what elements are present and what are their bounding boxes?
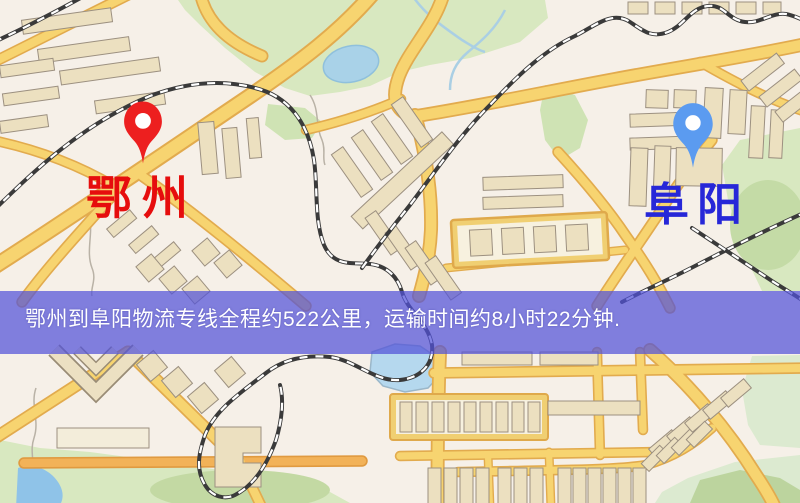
destination-label: 阜阳 bbox=[644, 182, 750, 227]
route-info-text: 鄂州到阜阳物流专线全程约522公里，运输时间约8小时22分钟. bbox=[0, 303, 620, 333]
base-map bbox=[0, 0, 800, 503]
destination-marker-icon[interactable] bbox=[671, 102, 715, 175]
origin-marker-icon[interactable] bbox=[122, 100, 164, 171]
route-info-banner: 鄂州到阜阳物流专线全程约522公里，运输时间约8小时22分钟. bbox=[0, 291, 800, 354]
map-canvas[interactable]: 鄂州 阜阳 鄂州到阜阳物流专线全程约522公里，运输时间约8小时22分钟. bbox=[0, 0, 800, 503]
origin-label: 鄂州 bbox=[86, 175, 198, 221]
